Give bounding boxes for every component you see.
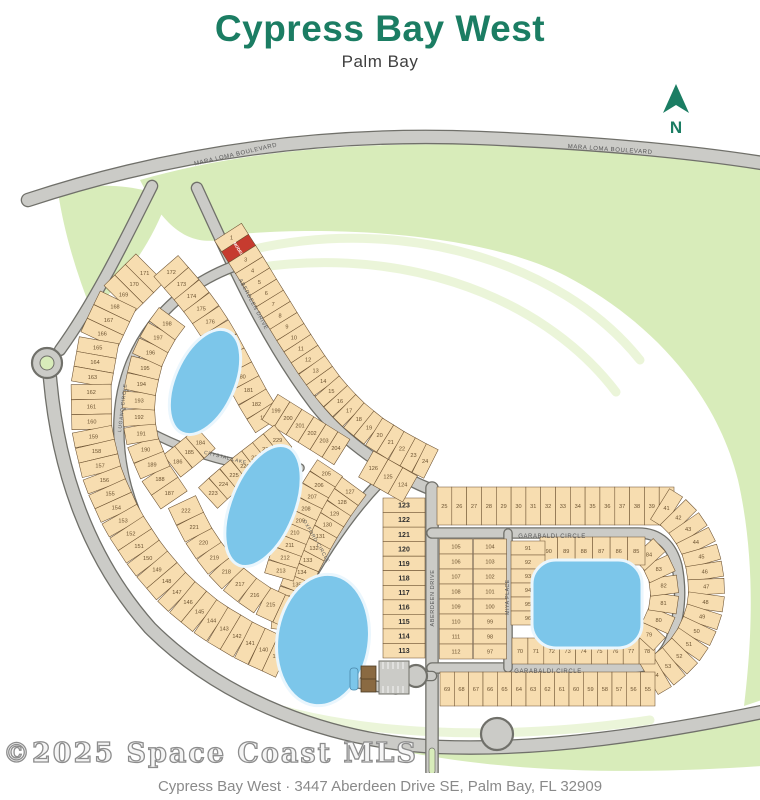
lot-number-168: 168	[110, 304, 119, 310]
lot-number-13: 13	[312, 368, 318, 374]
lot-number-153: 153	[118, 519, 127, 525]
lot-number-190: 190	[141, 447, 150, 453]
lot-number-176: 176	[206, 319, 215, 325]
lot-number-20: 20	[377, 433, 383, 439]
lot-number-47: 47	[703, 585, 709, 591]
lot-number-157: 157	[95, 464, 104, 470]
lot-number-58: 58	[602, 687, 608, 693]
lot-number-22: 22	[399, 447, 405, 453]
lot-number-81: 81	[660, 601, 666, 607]
lot-number-197: 197	[153, 335, 162, 341]
street-label: MIYA PLACE	[505, 579, 511, 614]
lot-number-172: 172	[167, 270, 176, 276]
lot-number-70: 70	[517, 649, 523, 655]
lot-number-174: 174	[187, 294, 196, 300]
lot-number-129: 129	[330, 511, 339, 517]
lot-number-59: 59	[587, 687, 593, 693]
lot-number-151: 151	[134, 544, 143, 550]
lot-number-114: 114	[398, 634, 409, 641]
lot-number-198: 198	[162, 322, 171, 328]
lot-number-189: 189	[147, 463, 156, 469]
lot-number-62: 62	[544, 687, 550, 693]
lot-number-170: 170	[129, 282, 138, 288]
lot-number-185: 185	[185, 450, 194, 456]
lot-number-163: 163	[88, 375, 97, 381]
lot-number-56: 56	[630, 687, 636, 693]
lot-number-147: 147	[172, 590, 181, 596]
lot-number-181: 181	[244, 388, 253, 394]
north-arrow-icon	[663, 84, 689, 113]
lot-number-35: 35	[589, 504, 595, 510]
community-pool	[350, 668, 358, 690]
lot-number-196: 196	[146, 350, 155, 356]
lot-number-24: 24	[422, 459, 428, 465]
lot-number-69: 69	[444, 687, 450, 693]
lot-number-28: 28	[486, 504, 492, 510]
north-label: N	[670, 118, 682, 137]
lot-number-1: 1	[230, 235, 233, 241]
lot-number-97: 97	[487, 649, 493, 655]
entrance-median	[429, 748, 435, 774]
lot-number-87: 87	[598, 549, 604, 555]
lot-number-7: 7	[272, 302, 275, 308]
lot-number-171: 171	[140, 271, 149, 277]
lot-number-8: 8	[279, 313, 282, 319]
lot-number-125: 125	[383, 474, 392, 480]
lot-number-68: 68	[458, 687, 464, 693]
lot-number-143: 143	[219, 626, 228, 632]
lot-number-159: 159	[89, 434, 98, 440]
lot-number-85: 85	[633, 549, 639, 555]
lot-number-65: 65	[501, 687, 507, 693]
lot-number-119: 119	[398, 561, 409, 568]
street-label: ABERDEEN DRIVE	[430, 570, 436, 627]
parking-lot	[379, 661, 409, 694]
lot-number-34: 34	[575, 504, 581, 510]
lot-number-11: 11	[298, 347, 304, 353]
footer-address: Cypress Bay West · 3447 Aberdeen Drive S…	[0, 773, 760, 800]
lot-number-49: 49	[699, 615, 705, 621]
lot-number-74: 74	[580, 649, 586, 655]
lot-number-216: 216	[250, 593, 259, 599]
lot-number-150: 150	[143, 556, 152, 562]
street-label: GARABALDI CIRCLE	[514, 669, 582, 675]
lot-number-31: 31	[530, 504, 536, 510]
lot-number-52: 52	[676, 654, 682, 660]
lot-number-115: 115	[398, 619, 409, 626]
lot-number-213: 213	[276, 568, 285, 574]
lot-number-204: 204	[331, 446, 340, 452]
lot-number-186: 186	[173, 459, 182, 465]
lot-number-203: 203	[319, 439, 328, 445]
lot-number-146: 146	[183, 600, 192, 606]
lot-number-160: 160	[87, 420, 96, 426]
lot-number-82: 82	[660, 584, 666, 590]
lot-number-169: 169	[119, 292, 128, 298]
lot-number-17: 17	[346, 408, 352, 414]
lot-number-118: 118	[398, 575, 409, 582]
lot-number-158: 158	[92, 449, 101, 455]
lot-number-205: 205	[322, 471, 331, 477]
lot-number-16: 16	[337, 399, 343, 405]
lot-number-156: 156	[100, 478, 109, 484]
lot-number-187: 187	[165, 491, 174, 497]
lot-number-202: 202	[307, 431, 316, 437]
lot-number-3: 3	[244, 257, 247, 263]
lot-number-33: 33	[560, 504, 566, 510]
lot-number-191: 191	[136, 431, 145, 437]
lot-number-18: 18	[356, 417, 362, 423]
lot-number-25: 25	[441, 504, 447, 510]
lot-number-100: 100	[485, 604, 494, 610]
lot-number-166: 166	[97, 331, 106, 337]
lot-number-144: 144	[207, 618, 216, 624]
lot-number-141: 141	[245, 641, 254, 647]
lot-number-57: 57	[616, 687, 622, 693]
lot-number-92: 92	[525, 560, 531, 566]
lot-number-102: 102	[485, 574, 494, 580]
lot-number-29: 29	[501, 504, 507, 510]
lot-number-14: 14	[320, 379, 326, 385]
lot-number-67: 67	[473, 687, 479, 693]
lot-number-80: 80	[656, 618, 662, 624]
lot-number-206: 206	[314, 483, 323, 489]
lot-number-42: 42	[675, 515, 681, 521]
lot-number-162: 162	[87, 390, 96, 396]
lot-number-192: 192	[134, 415, 143, 421]
lot-number-12: 12	[305, 357, 311, 363]
lot-number-71: 71	[533, 649, 539, 655]
lot-number-15: 15	[328, 389, 334, 395]
lot-number-5: 5	[258, 280, 261, 286]
lot-number-212: 212	[280, 556, 289, 562]
lot-number-37: 37	[619, 504, 625, 510]
lot-number-46: 46	[702, 569, 708, 575]
lot-number-184: 184	[196, 441, 205, 447]
lot-number-10: 10	[291, 336, 297, 342]
lot-number-223: 223	[208, 491, 217, 497]
lot-number-19: 19	[366, 425, 372, 431]
lot-number-208: 208	[301, 506, 310, 512]
lot-number-154: 154	[112, 505, 121, 511]
lot-number-101: 101	[485, 589, 494, 595]
lot-number-77: 77	[628, 649, 634, 655]
lot-number-173: 173	[177, 282, 186, 288]
lot-number-149: 149	[152, 568, 161, 574]
lot-number-55: 55	[645, 687, 651, 693]
lot-number-142: 142	[232, 634, 241, 640]
lot-number-134: 134	[297, 570, 306, 576]
roundabout-island	[40, 356, 54, 370]
lot-number-75: 75	[596, 649, 602, 655]
lot-number-50: 50	[693, 629, 699, 635]
lot-number-222: 222	[181, 508, 190, 514]
lot-number-9: 9	[285, 324, 288, 330]
lot-number-27: 27	[471, 504, 477, 510]
lot-number-79: 79	[646, 632, 652, 638]
lot-number-48: 48	[702, 600, 708, 606]
lot-number-133: 133	[303, 558, 312, 564]
lot-number-188: 188	[155, 477, 164, 483]
lot-number-193: 193	[134, 399, 143, 405]
lot-number-78: 78	[644, 649, 650, 655]
lot-number-32: 32	[545, 504, 551, 510]
lot-number-93: 93	[525, 574, 531, 580]
lot-number-121: 121	[398, 532, 410, 539]
lot-number-211: 211	[285, 543, 294, 549]
lot-number-218: 218	[222, 570, 231, 576]
lot-number-36: 36	[604, 504, 610, 510]
lot-number-221: 221	[190, 525, 199, 531]
lot-number-161: 161	[87, 405, 96, 411]
lot-number-88: 88	[581, 549, 587, 555]
lot-number-225: 225	[229, 473, 238, 479]
lot-number-61: 61	[559, 687, 565, 693]
lot-number-76: 76	[612, 649, 618, 655]
lot-number-116: 116	[398, 604, 409, 611]
lot-number-120: 120	[398, 546, 410, 553]
lot-number-167: 167	[104, 318, 113, 324]
lot-number-152: 152	[126, 531, 135, 537]
lot-number-38: 38	[634, 504, 640, 510]
lot-number-117: 117	[398, 590, 409, 597]
lot-number-195: 195	[140, 366, 149, 372]
lot-number-220: 220	[199, 541, 208, 547]
lot-number-105: 105	[451, 544, 460, 550]
lot-number-91: 91	[525, 546, 531, 552]
lot-number-224: 224	[219, 482, 228, 488]
lot-number-122: 122	[398, 517, 410, 524]
lot-number-86: 86	[616, 549, 622, 555]
lot-number-104: 104	[485, 544, 494, 550]
lot-number-130: 130	[323, 523, 332, 529]
lot-number-106: 106	[451, 559, 460, 565]
lot-number-182: 182	[252, 402, 261, 408]
lot-number-98: 98	[487, 634, 493, 640]
lot-number-199: 199	[271, 409, 280, 415]
lot-number-83: 83	[656, 567, 662, 573]
lot-number-53: 53	[665, 664, 671, 670]
lot-number-103: 103	[485, 559, 494, 565]
lot-number-39: 39	[649, 504, 655, 510]
lot-number-43: 43	[685, 527, 691, 533]
lot-number-229: 229	[273, 438, 282, 444]
lot-number-72: 72	[549, 649, 555, 655]
lot-number-84: 84	[646, 552, 652, 558]
lot-number-41: 41	[663, 506, 669, 512]
lot-number-95: 95	[525, 602, 531, 608]
lot-number-45: 45	[698, 554, 704, 560]
lot-number-89: 89	[563, 549, 569, 555]
lot-number-4: 4	[251, 269, 254, 275]
lot-number-145: 145	[195, 609, 204, 615]
lot-number-64: 64	[516, 687, 522, 693]
lot-number-44: 44	[693, 540, 699, 546]
lot-number-148: 148	[162, 579, 171, 585]
lot-number-113: 113	[398, 648, 409, 655]
lot-number-30: 30	[515, 504, 521, 510]
lot-number-219: 219	[210, 556, 219, 562]
lot-number-201: 201	[295, 424, 304, 430]
lot-number-6: 6	[265, 291, 268, 297]
lot-number-90: 90	[546, 549, 552, 555]
lot-number-127: 127	[345, 489, 354, 495]
lot-number-23: 23	[410, 453, 416, 459]
lot-number-51: 51	[686, 642, 692, 648]
lot-number-109: 109	[451, 604, 460, 610]
lot-number-210: 210	[290, 531, 299, 537]
lot-number-165: 165	[93, 345, 102, 351]
lot-number-63: 63	[530, 687, 536, 693]
lot-number-175: 175	[197, 306, 206, 312]
lot-number-128: 128	[337, 500, 346, 506]
lot-number-140: 140	[259, 648, 268, 654]
lot-number-126: 126	[369, 466, 378, 472]
lot-number-124: 124	[398, 483, 407, 489]
lot-number-94: 94	[525, 588, 531, 594]
site-map-svg: 1MODEL3456789101112131415161718192021222…	[0, 0, 760, 800]
cul-de-sac-bulb	[481, 718, 513, 750]
lot-number-111: 111	[452, 634, 461, 640]
lot-number-123: 123	[398, 503, 410, 510]
lot-number-200: 200	[283, 416, 292, 422]
lot-number-73: 73	[564, 649, 570, 655]
lot-number-155: 155	[105, 492, 114, 498]
lot-number-215: 215	[266, 602, 275, 608]
lot-number-66: 66	[487, 687, 493, 693]
lot-number-108: 108	[451, 589, 460, 595]
lot-number-21: 21	[388, 440, 394, 446]
lot-number-207: 207	[308, 494, 317, 500]
lot-number-96: 96	[525, 616, 531, 622]
lot-number-99: 99	[487, 619, 493, 625]
lot-number-60: 60	[573, 687, 579, 693]
lot-number-217: 217	[235, 582, 244, 588]
lot-number-112: 112	[452, 649, 461, 655]
street-label: GARABALDI CIRCLE	[518, 534, 586, 540]
lot-number-107: 107	[451, 574, 460, 580]
site-map-page: 1MODEL3456789101112131415161718192021222…	[0, 0, 760, 800]
lake-4	[532, 560, 642, 648]
lot-number-26: 26	[456, 504, 462, 510]
site-map: 1MODEL3456789101112131415161718192021222…	[0, 0, 760, 800]
lot-number-110: 110	[452, 619, 461, 625]
lot-number-164: 164	[90, 360, 99, 366]
lot-number-194: 194	[137, 382, 146, 388]
